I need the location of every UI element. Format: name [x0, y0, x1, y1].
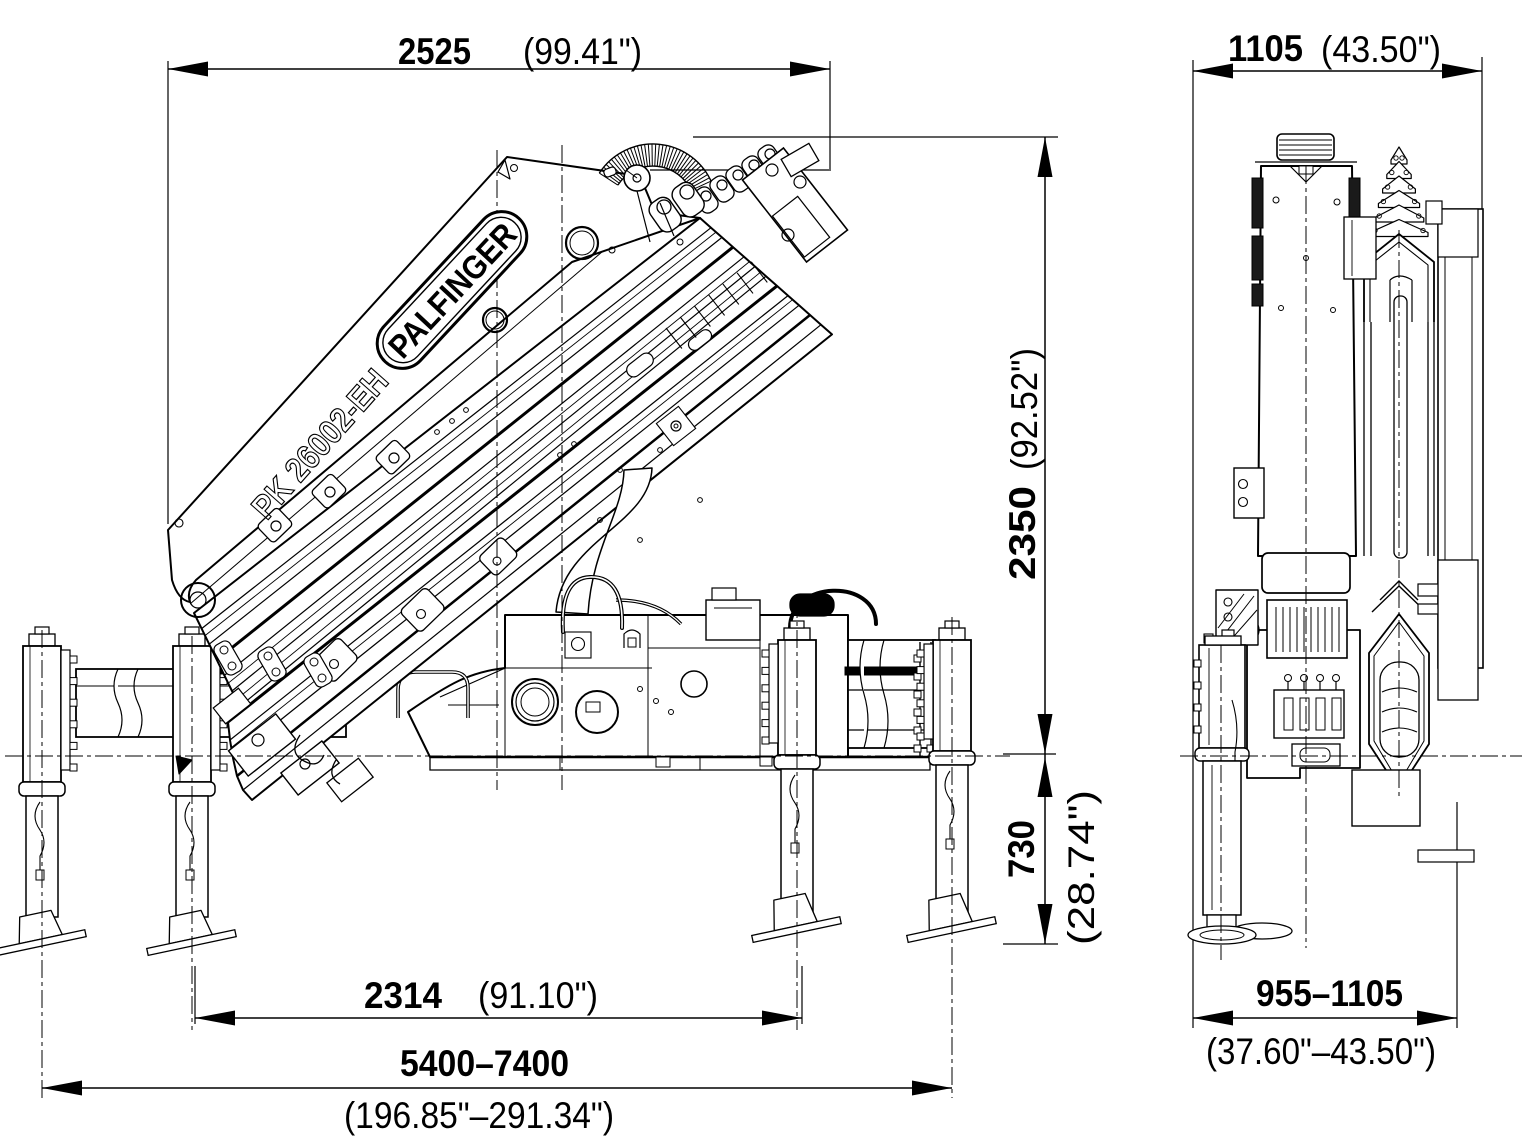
svg-text:(92.52"): (92.52"): [1004, 348, 1045, 470]
svg-text:955–1105: 955–1105: [1256, 973, 1403, 1014]
svg-text:(43.50"): (43.50"): [1321, 29, 1441, 70]
svg-text:1105: 1105: [1228, 28, 1303, 69]
svg-text:(37.60"–43.50"): (37.60"–43.50"): [1206, 1031, 1436, 1072]
svg-text:(99.41"): (99.41"): [523, 31, 642, 72]
svg-text:(91.10"): (91.10"): [478, 975, 598, 1016]
svg-text:2525: 2525: [398, 31, 471, 72]
svg-text:2350: 2350: [1002, 486, 1043, 580]
svg-text:(28.74"): (28.74"): [1061, 790, 1102, 945]
svg-text:2314: 2314: [364, 975, 442, 1016]
svg-text:730: 730: [1001, 820, 1042, 878]
svg-text:(196.85"–291.34"): (196.85"–291.34"): [344, 1095, 614, 1136]
svg-text:5400–7400: 5400–7400: [400, 1043, 569, 1084]
